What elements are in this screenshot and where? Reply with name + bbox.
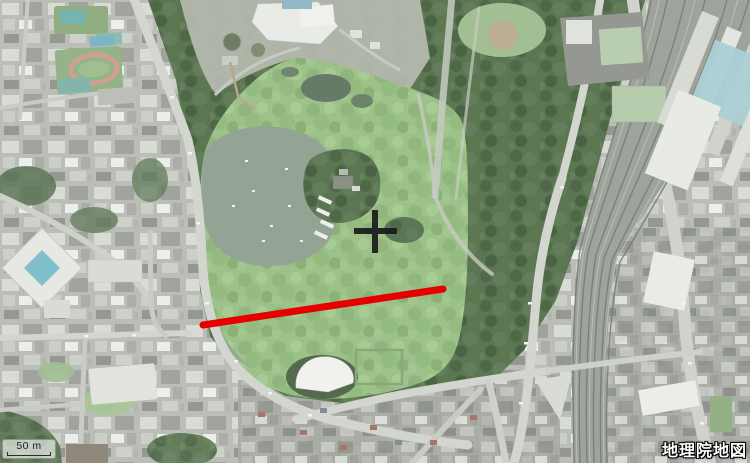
scale-bar: 50 m	[2, 439, 56, 459]
map-attribution-link[interactable]: 地理院地図	[662, 437, 747, 461]
aerial-imagery	[0, 0, 750, 463]
scale-bar-rule	[7, 452, 51, 456]
scale-bar-label: 50 m	[7, 440, 51, 452]
map-viewport[interactable]: 50 m 地理院地図	[0, 0, 750, 463]
